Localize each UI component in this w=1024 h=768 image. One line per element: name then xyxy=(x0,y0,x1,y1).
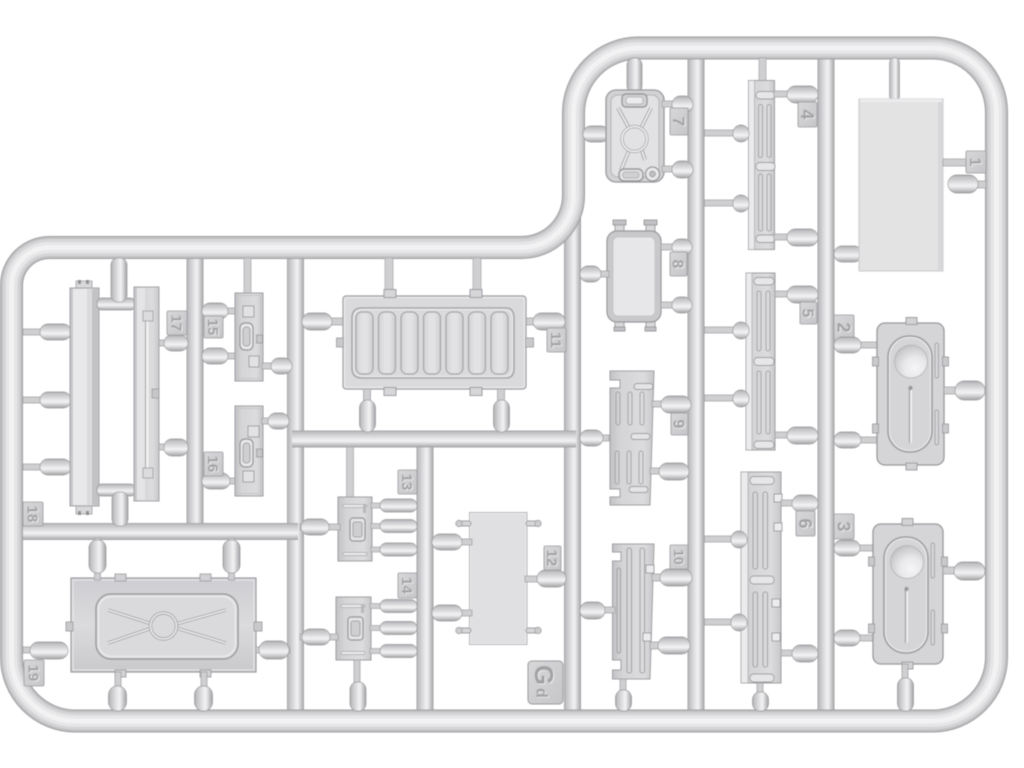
svg-text:4: 4 xyxy=(797,109,817,119)
svg-text:15: 15 xyxy=(204,319,221,336)
svg-text:17: 17 xyxy=(168,315,185,332)
svg-text:8: 8 xyxy=(669,260,686,269)
svg-text:G: G xyxy=(529,665,559,685)
svg-text:6: 6 xyxy=(795,518,815,528)
svg-text:13: 13 xyxy=(398,474,415,491)
svg-text:7: 7 xyxy=(669,117,688,126)
svg-text:16: 16 xyxy=(204,456,221,473)
svg-text:12: 12 xyxy=(543,550,560,567)
svg-text:10: 10 xyxy=(671,549,687,565)
svg-text:d: d xyxy=(533,688,550,698)
svg-text:1: 1 xyxy=(966,158,983,167)
svg-text:18: 18 xyxy=(24,506,41,523)
svg-text:2: 2 xyxy=(834,322,854,332)
svg-text:19: 19 xyxy=(25,665,42,682)
svg-text:11: 11 xyxy=(547,332,564,348)
svg-text:14: 14 xyxy=(398,577,415,594)
svg-text:5: 5 xyxy=(799,309,816,318)
svg-text:9: 9 xyxy=(670,420,687,429)
svg-text:3: 3 xyxy=(834,521,854,531)
